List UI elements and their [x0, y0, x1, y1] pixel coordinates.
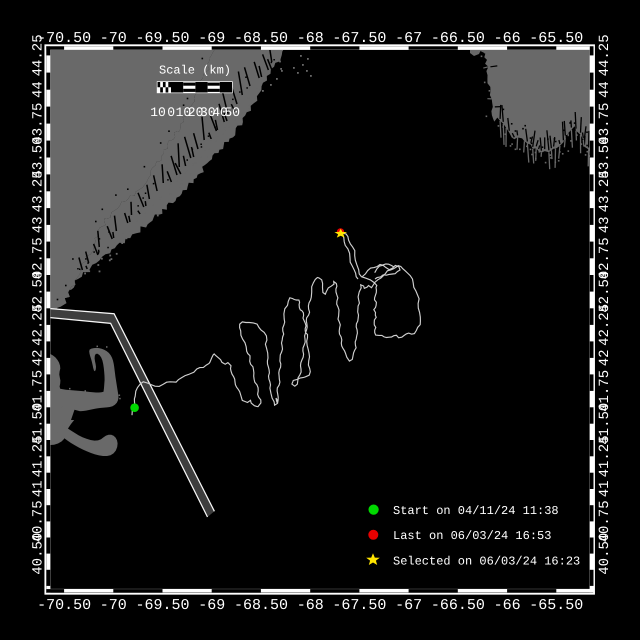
svg-text:-69: -69	[198, 597, 225, 614]
svg-text:0: 0	[167, 105, 175, 120]
svg-text:43: 43	[31, 216, 47, 233]
svg-text:42.25: 42.25	[31, 304, 47, 346]
svg-text:41: 41	[597, 480, 613, 497]
svg-text:-70: -70	[100, 597, 127, 614]
svg-text:43: 43	[597, 216, 613, 233]
svg-text:44.25: 44.25	[597, 34, 613, 76]
svg-text:-67.50: -67.50	[332, 30, 386, 47]
svg-text:Last on 06/03/24 16:53: Last on 06/03/24 16:53	[393, 529, 551, 543]
svg-text:-65.50: -65.50	[529, 30, 583, 47]
svg-text:41.25: 41.25	[31, 435, 47, 477]
svg-text:-69: -69	[198, 30, 225, 47]
svg-text:-69.50: -69.50	[135, 30, 189, 47]
svg-text:42: 42	[31, 349, 47, 366]
svg-text:-68.50: -68.50	[234, 30, 288, 47]
svg-text:-67: -67	[395, 30, 422, 47]
svg-text:43.25: 43.25	[597, 170, 613, 212]
svg-text:-66.50: -66.50	[431, 30, 485, 47]
svg-text:43.25: 43.25	[31, 170, 47, 212]
svg-text:41: 41	[31, 480, 47, 497]
svg-text:-67: -67	[395, 597, 422, 614]
svg-text:-68: -68	[297, 30, 324, 47]
svg-text:-70.50: -70.50	[37, 597, 91, 614]
svg-text:10: 10	[150, 105, 166, 120]
svg-text:41.25: 41.25	[597, 435, 613, 477]
svg-text:-65.50: -65.50	[529, 597, 583, 614]
svg-text:40.50: 40.50	[31, 533, 47, 575]
svg-text:-70: -70	[100, 30, 127, 47]
svg-text:42: 42	[597, 349, 613, 366]
svg-text:-66: -66	[494, 597, 521, 614]
svg-text:-69.50: -69.50	[135, 597, 189, 614]
svg-text:-66: -66	[494, 30, 521, 47]
svg-text:Start on 04/11/24 11:38: Start on 04/11/24 11:38	[393, 504, 559, 518]
svg-text:40.50: 40.50	[597, 533, 613, 575]
svg-text:44: 44	[31, 81, 47, 98]
svg-text:Selected on 06/03/24 16:23: Selected on 06/03/24 16:23	[393, 554, 580, 568]
svg-text:Scale (km): Scale (km)	[159, 64, 231, 78]
svg-text:-66.50: -66.50	[431, 597, 485, 614]
svg-text:50: 50	[224, 105, 240, 120]
svg-text:42.25: 42.25	[597, 304, 613, 346]
svg-text:44: 44	[597, 81, 613, 98]
svg-text:-67.50: -67.50	[332, 597, 386, 614]
svg-text:44.25: 44.25	[31, 34, 47, 76]
svg-text:-68.50: -68.50	[234, 597, 288, 614]
svg-text:-68: -68	[297, 597, 324, 614]
